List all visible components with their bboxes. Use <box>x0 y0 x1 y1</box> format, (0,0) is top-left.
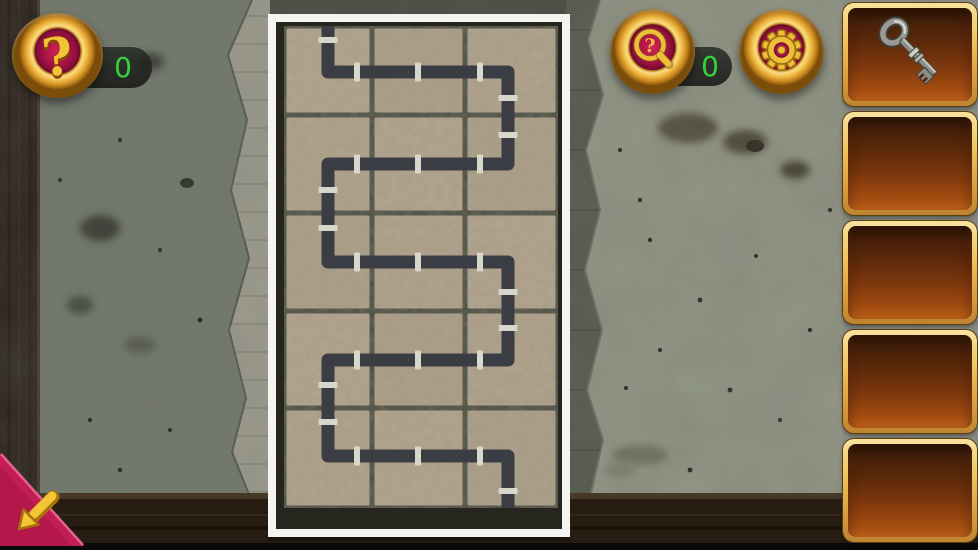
pipe-coupling <box>499 132 518 138</box>
pipe-coupling <box>477 63 483 82</box>
settings-button[interactable] <box>739 9 824 94</box>
pipe-coupling <box>319 419 338 425</box>
pipe-coupling <box>499 289 518 295</box>
gear-icon <box>739 9 824 94</box>
help-button[interactable]: ? <box>12 13 103 98</box>
inventory-slot-4[interactable] <box>843 330 977 433</box>
pipe-coupling <box>415 253 421 272</box>
key-icon <box>864 12 956 98</box>
pipe-coupling <box>354 155 360 174</box>
back-button[interactable] <box>0 450 92 550</box>
pipe-coupling <box>477 447 483 466</box>
pipe-coupling <box>499 325 518 331</box>
pipe-coupling <box>415 155 421 174</box>
inventory-slot-1[interactable] <box>843 3 977 106</box>
inventory-slot-2-contents <box>848 117 972 210</box>
pipe-coupling <box>415 447 421 466</box>
svg-text:?: ? <box>644 35 655 57</box>
pipe-coupling <box>477 351 483 370</box>
pipe-coupling <box>319 37 338 43</box>
magnifier-question-icon: ? <box>610 9 695 94</box>
pipe-coupling <box>354 253 360 272</box>
inventory-slot-4-contents <box>848 335 972 428</box>
inventory-panel <box>843 0 978 550</box>
game-screen: 0 ? 0 ? <box>0 0 978 550</box>
pipe-coupling <box>477 155 483 174</box>
pipe-coupling <box>319 382 338 388</box>
inventory-slot-2[interactable] <box>843 112 977 215</box>
inventory-slot-1-contents <box>848 8 972 101</box>
pipe-coupling <box>319 187 338 193</box>
inventory-slot-5[interactable] <box>843 439 977 542</box>
pipe-coupling <box>499 95 518 101</box>
pipe-coupling <box>319 225 338 231</box>
hint-button[interactable]: ? <box>610 9 695 94</box>
pipe-coupling <box>499 488 518 494</box>
inventory-slot-5-contents <box>848 444 972 537</box>
question-mark-icon: ? <box>8 10 107 104</box>
pipe-coupling <box>415 63 421 82</box>
inventory-slot-3[interactable] <box>843 221 977 324</box>
pipe-coupling <box>354 351 360 370</box>
pipe-coupling <box>354 447 360 466</box>
pipe-coupling <box>354 63 360 82</box>
inventory-slot-3-contents <box>848 226 972 319</box>
pipe-coupling <box>415 351 421 370</box>
pipe-coupling <box>477 253 483 272</box>
pipe-puzzle-panel <box>268 14 570 537</box>
